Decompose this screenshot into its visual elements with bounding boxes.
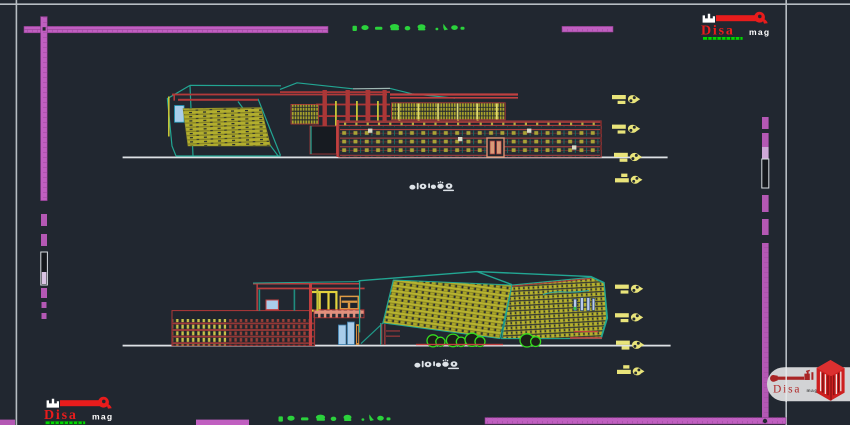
- svg-text:mag: mag: [92, 411, 113, 421]
- svg-text:Disa: Disa: [773, 383, 801, 395]
- svg-text:Disa: Disa: [44, 408, 78, 423]
- svg-text:mag: mag: [749, 27, 770, 37]
- svg-text:mag: mag: [807, 388, 818, 393]
- svg-text:Disa: Disa: [701, 24, 735, 39]
